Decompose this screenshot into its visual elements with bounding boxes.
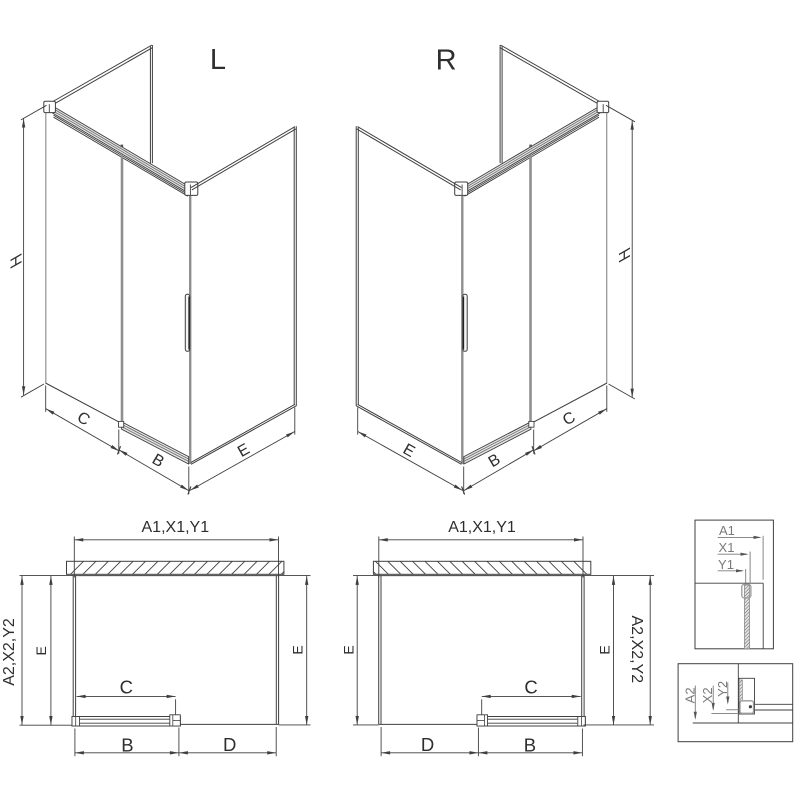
svg-text:C: C: [120, 677, 133, 698]
svg-text:B: B: [121, 734, 133, 755]
svg-text:X1: X1: [719, 540, 735, 555]
svg-text:E: E: [290, 645, 306, 654]
svg-text:A1,X1,Y1: A1,X1,Y1: [141, 519, 209, 536]
svg-text:D: D: [421, 734, 434, 755]
svg-text:A1: A1: [719, 523, 735, 538]
svg-text:E: E: [340, 645, 356, 654]
svg-text:A2,X2,Y2: A2,X2,Y2: [628, 615, 645, 683]
svg-text:A1,X1,Y1: A1,X1,Y1: [448, 519, 516, 536]
svg-text:E: E: [597, 645, 613, 654]
svg-text:C: C: [524, 677, 537, 698]
svg-text:Y1: Y1: [718, 557, 734, 572]
svg-text:L: L: [210, 44, 226, 76]
svg-text:E: E: [33, 646, 49, 655]
svg-text:D: D: [223, 734, 236, 755]
svg-text:B: B: [524, 734, 536, 755]
svg-text:A2,X2,Y2: A2,X2,Y2: [1, 618, 18, 686]
svg-text:R: R: [436, 44, 457, 76]
